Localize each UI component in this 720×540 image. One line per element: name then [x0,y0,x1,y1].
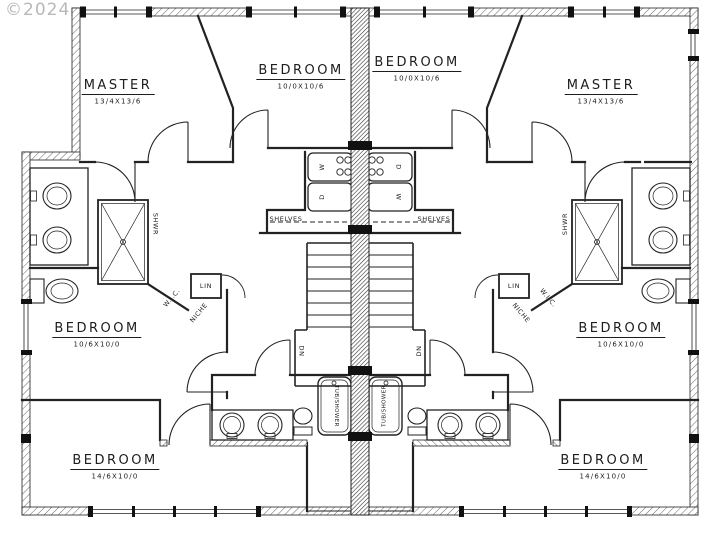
shower-label-left: SHWR [152,213,159,235]
room-dims-bedroom-mid-right: 10/6X10/0 [597,342,644,349]
room-dims-bedroom-mid-left: 10/6X10/0 [73,342,120,349]
linen-label-right: LIN [508,283,520,290]
floorplan-page: ©2024 MASTER 13/4X13/6 BEDROOM 10/0X10/6… [0,0,720,540]
room-label-master-left: MASTER [82,79,155,95]
room-dims-bedroom-top-right: 10/0X10/6 [393,76,440,83]
window-right-upper [688,29,699,61]
stairs-dn-label-right: DN [416,345,423,356]
room-label-bedroom-bottom-left: BEDROOM [70,454,159,470]
party-wall [348,8,372,515]
washer-label-left: W [319,163,326,170]
room-dims-bedroom-bottom-left: 14/6X10/0 [91,474,138,481]
room-label-bedroom-top-right: BEDROOM [372,56,461,72]
room-label-master-right: MASTER [565,79,638,95]
room-dims-master-right: 13/4X13/6 [577,99,624,106]
stairs-dn-label-left: DN [298,345,305,356]
room-label-bedroom-mid-right: BEDROOM [576,322,665,338]
room-label-bedroom-top-left: BEDROOM [256,64,345,80]
linen-label-left: LIN [200,283,212,290]
washer-label-right: W [395,193,402,200]
room-label-bedroom-bottom-right: BEDROOM [558,454,647,470]
room-dims-bedroom-top-left: 10/0X10/6 [277,84,324,91]
dryer-label-right: D [395,164,402,170]
room-dims-master-left: 13/4X13/6 [94,99,141,106]
room-label-bedroom-mid-left: BEDROOM [52,322,141,338]
dryer-label-left: D [319,194,326,200]
tub-shower-label-left: TUB/SHOWER [332,385,338,427]
shelves-label-left: SHELVES [270,216,303,223]
shelves-label-right: SHELVES [418,216,451,223]
unit-right-linework [360,7,699,518]
shower-label-right: SHWR [562,213,569,235]
copyright-watermark: ©2024 [5,0,70,20]
room-dims-bedroom-bottom-right: 14/6X10/0 [579,474,626,481]
tub-shower-label-right: TUB/SHOWER [382,385,388,427]
